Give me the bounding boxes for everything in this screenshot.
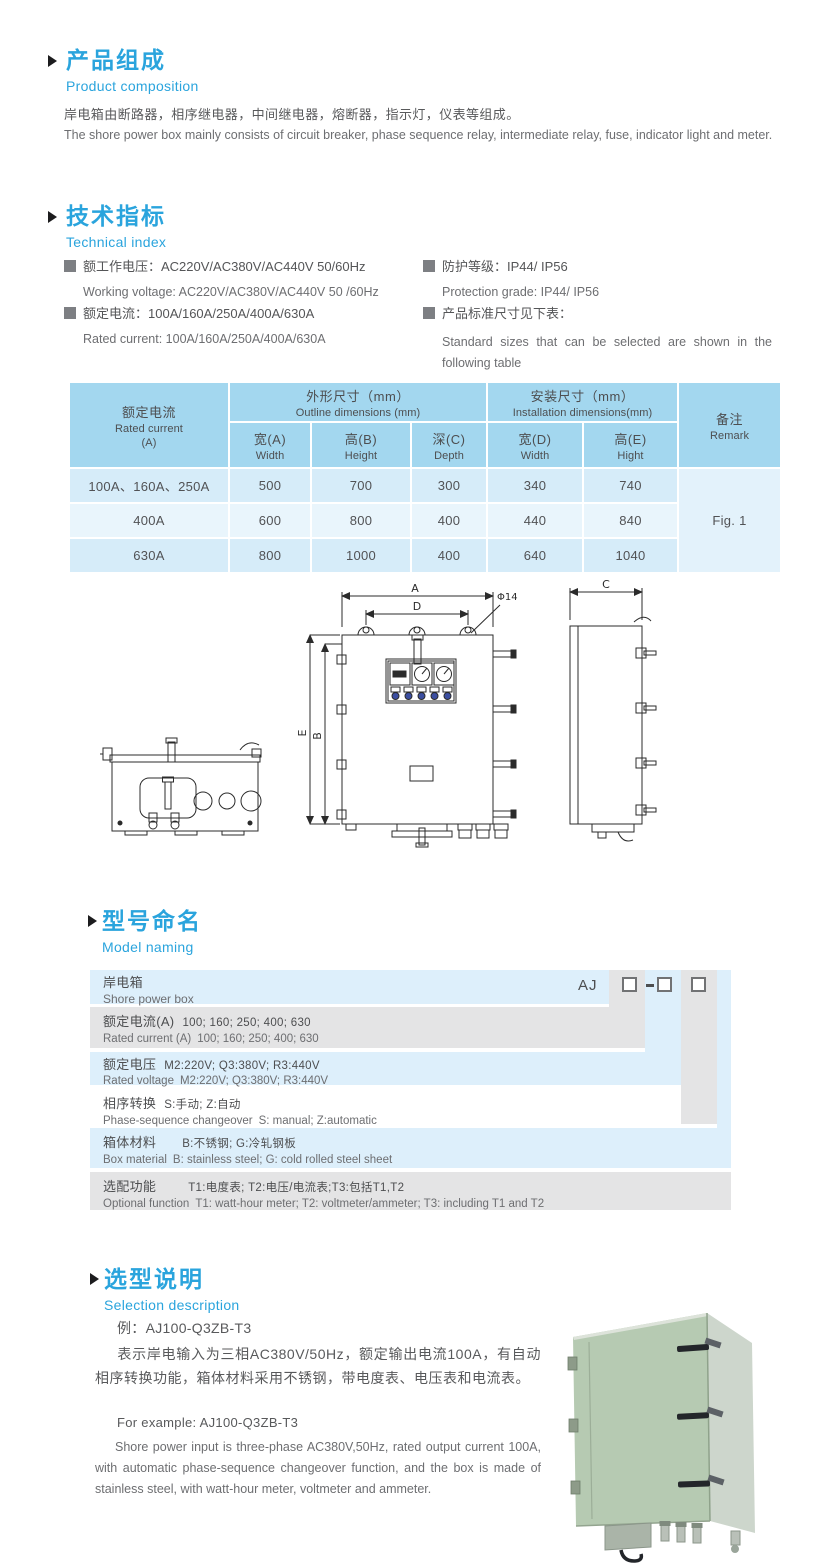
header-unit: (A) [70, 437, 228, 449]
spec-protection-grade: 防护等级：IP44/ IP56 Protection grade: IP44/ … [423, 256, 783, 299]
row-cn-value: M2:220V; Q3:380V; R3:440V [164, 1060, 320, 1072]
drawing-side-view [570, 588, 656, 841]
product-photo [545, 1293, 803, 1565]
header-cn: 高(B) [312, 429, 410, 448]
col-subheader-hight-e: 高(E) Hight [583, 422, 678, 468]
header-en: Height [312, 450, 410, 462]
col-subheader-width-d: 宽(D) Width [487, 422, 583, 468]
row-en-value: S: manual; Z:automatic [259, 1115, 377, 1127]
row-en-label: Rated current (A) [103, 1033, 191, 1045]
spec-en-text: Working voltage: AC220V/AC380V/AC440V 50… [83, 285, 429, 299]
spec-rated-current: 额定电流：100A/160A/250A/400A/630A Rated curr… [64, 303, 429, 346]
cell-remark: Fig. 1 [678, 468, 781, 573]
spec-cn-text: 额定电流：100A/160A/250A/400A/630A [83, 303, 314, 322]
section-title-en: Technical index [66, 234, 166, 250]
row-cn-value: T1:电度表; T2:电压/电流表;T3:包括T1,T2 [188, 1182, 404, 1194]
row-en-label: Optional function [103, 1198, 189, 1210]
row-cn-label: 岸电箱 [103, 975, 143, 990]
spec-en-text: Protection grade: IP44/ IP56 [442, 285, 783, 299]
header-en: Rated current [70, 423, 228, 435]
row-cn-label: 箱体材料 [103, 1135, 156, 1150]
cable-glands [605, 1521, 740, 1561]
row-cn-value: S:手动; Z:自动 [164, 1099, 240, 1111]
spec-cn-text: 额工作电压：AC220V/AC380V/AC440V 50/60Hz [83, 256, 366, 275]
cell-depth-c: 400 [411, 503, 487, 538]
row-en-value: M2:220V; Q3:380V; R3:440V [180, 1075, 328, 1087]
cell-width-d: 440 [487, 503, 583, 538]
triangle-marker-icon [48, 55, 57, 67]
header-cn: 深(C) [412, 429, 486, 448]
ladder-column-3 [681, 970, 717, 1124]
col-header-rated-current: 额定电流 Rated current (A) [69, 382, 229, 468]
code-prefix: AJ [578, 977, 598, 994]
row-cn-value: B:不锈钢; G:冷轧钢板 [182, 1138, 296, 1150]
selection-example-en: For example: AJ100-Q3ZB-T3 [117, 1415, 298, 1430]
col-header-remark: 备注 Remark [678, 382, 781, 468]
cell-current: 100A、160A、250A [69, 468, 229, 503]
header-cn: 安装尺寸（mm） [488, 386, 677, 405]
section-title-en: Selection description [104, 1297, 240, 1313]
catalog-page: 产品组成 Product composition 岸电箱由断路器，相序继电器，中… [0, 0, 830, 1568]
cell-depth-c: 400 [411, 538, 487, 573]
spec-standard-sizes: 产品标准尺寸见下表： Standard sizes that can be se… [423, 303, 783, 373]
cell-height-b: 1000 [311, 538, 411, 573]
drawing-bottom-view [100, 738, 261, 835]
composition-body-cn: 岸电箱由断路器，相序继电器，中间继电器，熔断器，指示灯，仪表等组成。 [64, 104, 764, 123]
section-header-composition: 产品组成 Product composition [48, 47, 199, 94]
row-cn-label: 相序转换 [103, 1096, 156, 1111]
technical-drawing: A D Φ14 E B C [70, 578, 770, 878]
cell-hight-e: 840 [583, 503, 678, 538]
cell-width-a: 600 [229, 503, 311, 538]
section-title-en: Product composition [66, 78, 199, 94]
spec-working-voltage: 额工作电压：AC220V/AC380V/AC440V 50/60Hz Worki… [64, 256, 429, 299]
dim-label-b: B [311, 732, 324, 740]
ladder-row-phase-sequence: 相序转换S:手动; Z:自动 Phase-sequence changeover… [90, 1089, 717, 1124]
ladder-row-rated-voltage: 额定电压M2:220V; Q3:380V; R3:440V Rated volt… [90, 1052, 681, 1085]
cell-width-a: 500 [229, 468, 311, 503]
row-en-label: Rated voltage [103, 1075, 174, 1087]
header-cn: 备注 [679, 409, 780, 428]
header-cn: 外形尺寸（mm） [230, 386, 486, 405]
cell-height-b: 800 [311, 503, 411, 538]
header-en: Remark [679, 430, 780, 442]
section-title-cn: 选型说明 [104, 1266, 240, 1292]
header-en: Width [230, 450, 310, 462]
selection-body-cn: 表示岸电输入为三相AC380V/50Hz，额定输出电流100A，有自动相序转换功… [95, 1342, 541, 1390]
row-en-value: T1: watt-hour meter; T2: voltmeter/ammet… [195, 1198, 544, 1210]
square-bullet-icon [423, 307, 435, 319]
spec-cn-text: 产品标准尺寸见下表： [442, 303, 572, 322]
table-row: 100A、160A、250A 500 700 300 340 740 Fig. … [69, 468, 781, 503]
row-cn-label: 选配功能 [103, 1179, 156, 1194]
header-en: Installation dimensions(mm) [488, 407, 677, 419]
square-bullet-icon [423, 260, 435, 272]
spec-cn-text: 防护等级：IP44/ IP56 [442, 256, 568, 275]
row-cn-value: 100; 160; 250; 400; 630 [182, 1017, 310, 1029]
header-en: Width [488, 450, 582, 462]
square-bullet-icon [64, 260, 76, 272]
col-header-installation: 安装尺寸（mm） Installation dimensions(mm) [487, 382, 678, 422]
section-title-cn: 产品组成 [66, 47, 199, 73]
ladder-row-optional-function: 选配功能T1:电度表; T2:电压/电流表;T3:包括T1,T2 Optiona… [90, 1172, 731, 1210]
header-cn: 宽(D) [488, 429, 582, 448]
ladder-row-shore-power-box: 岸电箱 Shore power box [90, 970, 609, 1004]
col-subheader-width-a: 宽(A) Width [229, 422, 311, 468]
spec-en-text: Standard sizes that can be selected are … [442, 332, 772, 373]
row-cn-label: 额定电流(A) [103, 1014, 174, 1029]
header-cn: 高(E) [584, 429, 677, 448]
cell-width-d: 640 [487, 538, 583, 573]
triangle-marker-icon [90, 1273, 99, 1285]
header-cn: 额定电流 [70, 402, 228, 421]
row-en-label: Box material [103, 1154, 167, 1166]
col-header-outline: 外形尺寸（mm） Outline dimensions (mm) [229, 382, 487, 422]
ladder-column-4 [717, 970, 731, 1168]
cell-current: 630A [69, 538, 229, 573]
table-row: 630A 800 1000 400 640 1040 [69, 538, 781, 573]
code-dash [646, 984, 654, 987]
row-en-label: Shore power box [103, 992, 194, 1006]
section-header-selection: 选型说明 Selection description [90, 1266, 240, 1313]
dim-label-d: D [413, 600, 421, 613]
cell-width-d: 340 [487, 468, 583, 503]
section-header-technical: 技术指标 Technical index [48, 203, 166, 250]
dimension-table: 额定电流 Rated current (A) 外形尺寸（mm） Outline … [68, 381, 782, 574]
header-en: Hight [584, 450, 677, 462]
cell-height-b: 700 [311, 468, 411, 503]
cell-current: 400A [69, 503, 229, 538]
col-subheader-depth-c: 深(C) Depth [411, 422, 487, 468]
header-en: Depth [412, 450, 486, 462]
row-en-label: Phase-sequence changeover [103, 1115, 253, 1127]
section-header-model-naming: 型号命名 Model naming [88, 908, 202, 955]
code-box-current [622, 977, 637, 992]
shore-power-box-cabinet [568, 1313, 755, 1561]
spec-en-text: Rated current: 100A/160A/250A/400A/630A [83, 332, 429, 346]
cell-depth-c: 300 [411, 468, 487, 503]
section-title-en: Model naming [102, 939, 202, 955]
row-en-value: 100; 160; 250; 400; 630 [197, 1033, 319, 1045]
table-row: 400A 600 800 400 440 840 [69, 503, 781, 538]
dim-label-c: C [602, 578, 610, 591]
code-box-voltage [657, 977, 672, 992]
selection-body-en: Shore power input is three-phase AC380V,… [95, 1437, 541, 1500]
cell-hight-e: 740 [583, 468, 678, 503]
ladder-row-box-material: 箱体材料B:不锈钢; G:冷轧钢板 Box materialB: stainle… [90, 1128, 731, 1168]
square-bullet-icon [64, 307, 76, 319]
row-cn-label: 额定电压 [103, 1057, 156, 1072]
selection-example-cn: 例：AJ100-Q3ZB-T3 [117, 1318, 251, 1338]
dim-label-a: A [411, 582, 419, 595]
dim-label-e: E [296, 729, 309, 736]
ladder-row-rated-current: 额定电流(A)100; 160; 250; 400; 630 Rated cur… [90, 1007, 645, 1048]
row-en-value: B: stainless steel; G: cold rolled steel… [173, 1154, 392, 1166]
cell-width-a: 800 [229, 538, 311, 573]
triangle-marker-icon [48, 211, 57, 223]
drawing-front-view [310, 592, 516, 847]
triangle-marker-icon [88, 915, 97, 927]
code-box-option [691, 977, 706, 992]
cell-hight-e: 1040 [583, 538, 678, 573]
section-title-cn: 技术指标 [66, 203, 166, 229]
header-cn: 宽(A) [230, 429, 310, 448]
dim-label-phi14: Φ14 [497, 592, 518, 603]
composition-body-en: The shore power box mainly consists of c… [64, 128, 776, 142]
section-title-cn: 型号命名 [102, 908, 202, 934]
header-en: Outline dimensions (mm) [230, 407, 486, 419]
col-subheader-height-b: 高(B) Height [311, 422, 411, 468]
